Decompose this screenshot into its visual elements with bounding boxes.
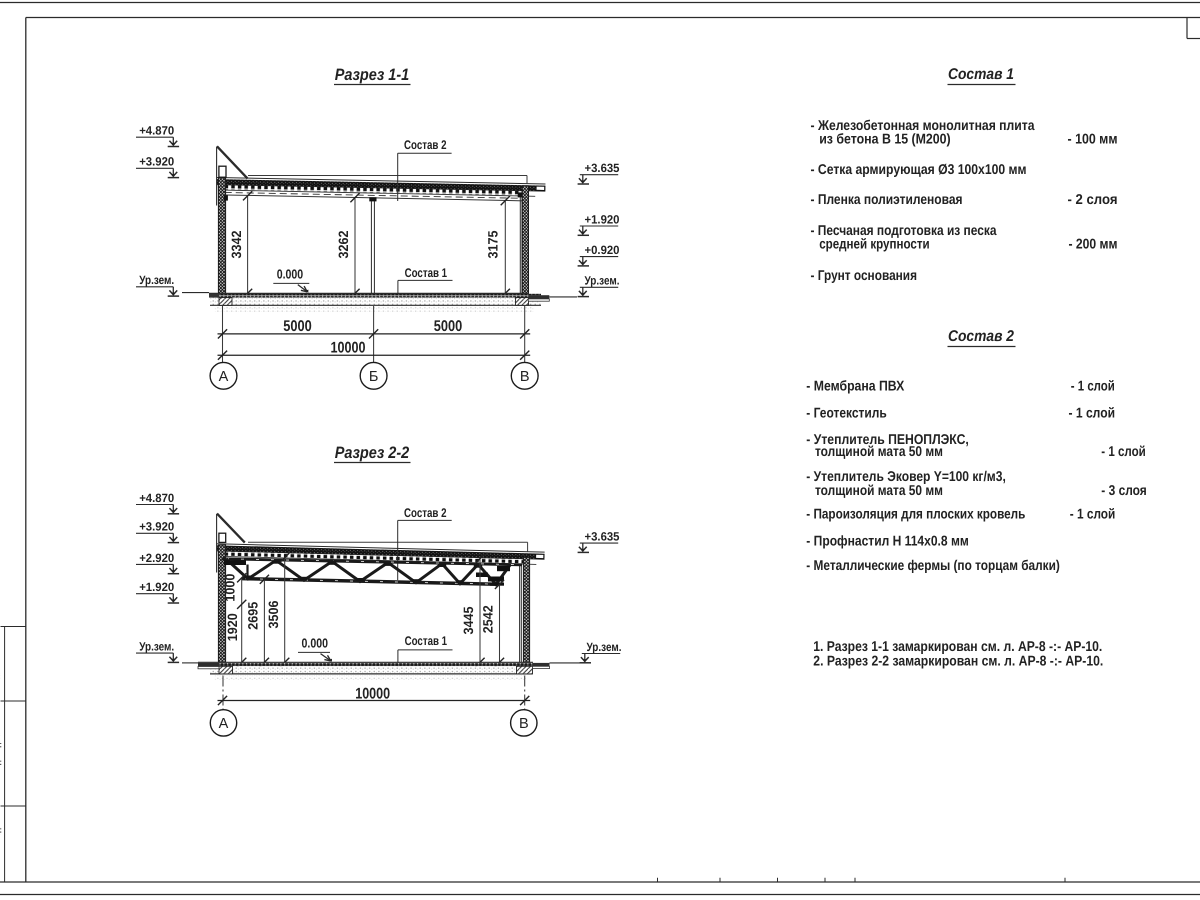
svg-text:+1.920: +1.920	[139, 580, 174, 594]
svg-text:Инв. № подл.: Инв. № подл.	[0, 822, 2, 865]
svg-text:3175: 3175	[485, 230, 500, 258]
svg-text:толщиной мата 50 мм: толщиной мата 50 мм	[815, 444, 943, 460]
svg-text:+3.635: +3.635	[585, 530, 620, 544]
svg-text:Состав 1: Состав 1	[405, 634, 448, 648]
svg-text:+3.920: +3.920	[139, 520, 174, 534]
svg-text:Состав 2: Состав 2	[948, 328, 1014, 345]
svg-text:2542: 2542	[481, 605, 496, 633]
svg-text:+4.870: +4.870	[139, 124, 174, 138]
svg-text:0.000: 0.000	[277, 266, 304, 281]
svg-text:+1.920: +1.920	[585, 212, 620, 226]
svg-text:Б: Б	[369, 369, 379, 385]
svg-text:- 1 слой: - 1 слой	[1070, 507, 1116, 523]
svg-text:3342: 3342	[229, 231, 244, 259]
svg-text:- Сетка армирующая Ø3 100х100: - Сетка армирующая Ø3 100х100 мм	[811, 162, 1027, 178]
svg-text:Разрез 2-2: Разрез 2-2	[335, 444, 410, 462]
svg-text:3445: 3445	[461, 606, 476, 634]
svg-text:- Грунт основания: - Грунт основания	[811, 268, 918, 284]
svg-text:+2.920: +2.920	[139, 551, 174, 565]
svg-text:- 1 слой: - 1 слой	[1071, 379, 1115, 395]
svg-text:- 100 мм: - 100 мм	[1068, 132, 1118, 148]
svg-text:5000: 5000	[434, 318, 463, 335]
svg-text:- 200 мм: - 200 мм	[1069, 236, 1118, 252]
svg-text:10000: 10000	[355, 685, 390, 702]
svg-text:Состав 2: Состав 2	[404, 506, 447, 520]
svg-text:Состав 1: Состав 1	[405, 266, 448, 280]
svg-text:Подп. и дата: Подп. и дата	[0, 732, 2, 773]
svg-text:5000: 5000	[283, 318, 312, 335]
svg-text:+3.920: +3.920	[139, 155, 174, 169]
svg-text:- 2 слоя: - 2 слоя	[1068, 192, 1118, 208]
svg-text:- Мембрана ПВХ: - Мембрана ПВХ	[806, 379, 904, 395]
svg-text:0.000: 0.000	[302, 635, 329, 650]
svg-text:10000: 10000	[331, 340, 366, 357]
svg-text:1920: 1920	[225, 613, 240, 641]
svg-text:2695: 2695	[245, 601, 260, 629]
svg-text:Ур.зем.: Ур.зем.	[585, 274, 620, 288]
svg-text:толщиной мата 50 мм: толщиной мата 50 мм	[815, 483, 943, 499]
svg-text:из бетона В 15 (М200): из бетона В 15 (М200)	[819, 132, 951, 148]
svg-text:Ур.зем.: Ур.зем.	[139, 640, 174, 654]
svg-text:А: А	[219, 369, 229, 385]
svg-text:Разрез 1-1: Разрез 1-1	[335, 66, 410, 84]
svg-text:+4.870: +4.870	[139, 491, 174, 505]
svg-text:А: А	[219, 716, 229, 732]
svg-text:- 1 слой: - 1 слой	[1101, 444, 1146, 460]
svg-text:- 1 слой: - 1 слой	[1069, 406, 1116, 422]
svg-text:Состав 2: Состав 2	[404, 138, 447, 152]
svg-text:- 3 слоя: - 3 слоя	[1101, 483, 1147, 499]
svg-text:+0.920: +0.920	[585, 243, 620, 257]
svg-text:- Металлические фермы (по торц: - Металлические фермы (по торцам балки)	[806, 558, 1060, 574]
svg-text:Состав 1: Состав 1	[948, 66, 1014, 83]
svg-text:- Профнастил Н 114х0.8 мм: - Профнастил Н 114х0.8 мм	[806, 534, 969, 550]
svg-text:Ур.зем.: Ур.зем.	[587, 640, 622, 654]
svg-text:В: В	[519, 716, 529, 732]
svg-text:3262: 3262	[336, 231, 351, 259]
svg-text:+3.635: +3.635	[585, 161, 620, 175]
svg-text:- Пленка полиэтиленовая: - Пленка полиэтиленовая	[811, 192, 963, 208]
svg-text:3506: 3506	[266, 600, 281, 628]
svg-text:- Пароизоляция для плоских кро: - Пароизоляция для плоских кровель	[806, 507, 1025, 523]
svg-text:Ур.зем.: Ур.зем.	[139, 273, 174, 287]
svg-text:Взам. инв. №: Взам. инв. №	[0, 642, 2, 685]
svg-text:- Геотекстиль: - Геотекстиль	[806, 406, 887, 422]
svg-text:В: В	[520, 369, 530, 385]
svg-text:средней крупности: средней крупности	[819, 236, 930, 252]
svg-text:2. Разрез 2-2 замаркирован см.: 2. Разрез 2-2 замаркирован см. л. АР-8 -…	[813, 653, 1103, 669]
svg-text:1000: 1000	[222, 574, 237, 602]
